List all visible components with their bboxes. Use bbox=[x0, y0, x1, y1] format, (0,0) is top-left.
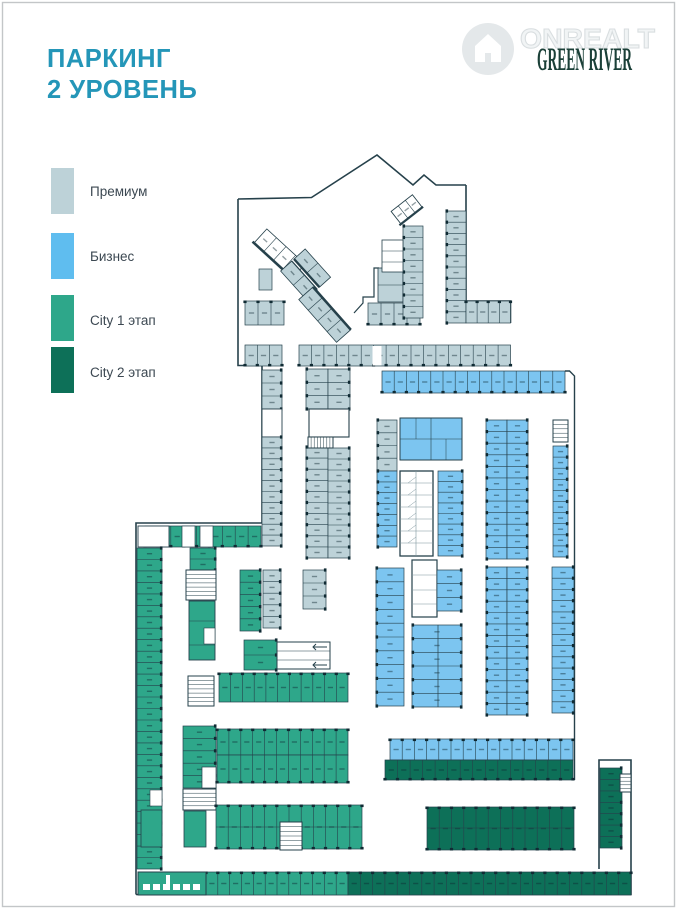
svg-text:Бизнес: Бизнес bbox=[90, 249, 135, 264]
svg-text:GREEN RIVER: GREEN RIVER bbox=[537, 42, 632, 78]
svg-text:Премиум: Премиум bbox=[90, 184, 147, 199]
svg-text:City 2 этап: City 2 этап bbox=[90, 365, 156, 380]
svg-text:City 1 этап: City 1 этап bbox=[90, 313, 156, 328]
svg-text:2 УРОВЕНЬ: 2 УРОВЕНЬ bbox=[47, 76, 197, 104]
svg-text:ПАРКИНГ: ПАРКИНГ bbox=[47, 45, 171, 73]
